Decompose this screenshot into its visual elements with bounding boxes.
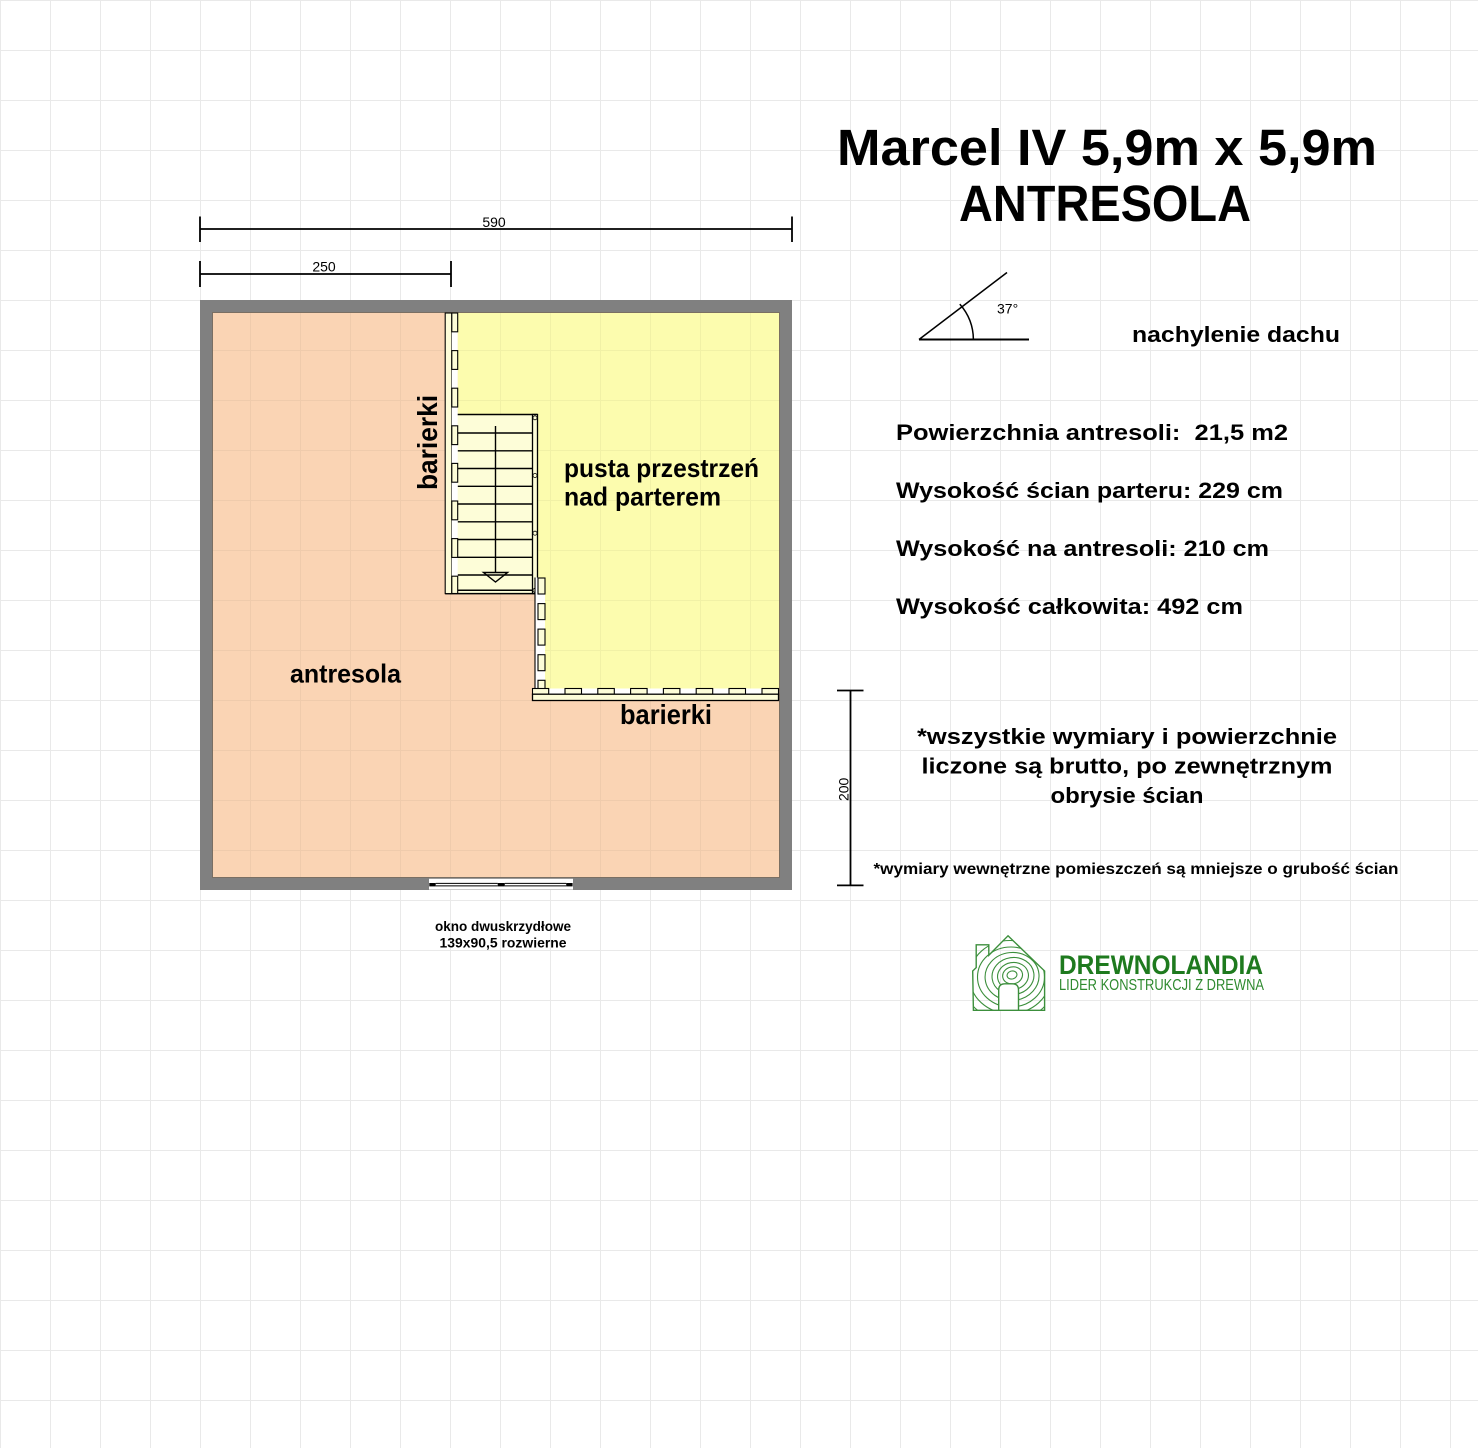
svg-text:antresola: antresola (290, 659, 402, 689)
svg-text:nad parterem: nad parterem (564, 482, 721, 512)
svg-text:Wysokość całkowita: 492 cm: Wysokość całkowita: 492 cm (896, 594, 1243, 619)
svg-text:liczone są brutto, po zewnętrz: liczone są brutto, po zewnętrznym (922, 754, 1333, 779)
svg-text:590: 590 (482, 214, 506, 230)
svg-text:Marcel IV 5,9m x 5,9m: Marcel IV 5,9m x 5,9m (837, 119, 1377, 176)
svg-text:pusta przestrzeń: pusta przestrzeń (564, 453, 759, 483)
svg-text:nachylenie dachu: nachylenie dachu (1132, 322, 1340, 347)
svg-text:okno dwuskrzydłowe: okno dwuskrzydłowe (435, 919, 571, 934)
svg-text:*wszystkie wymiary i powierzch: *wszystkie wymiary i powierzchnie (917, 724, 1337, 749)
svg-text:*wymiary wewnętrzne pomieszcze: *wymiary wewnętrzne pomieszczeń są mniej… (874, 861, 1399, 878)
svg-text:37°: 37° (997, 301, 1018, 317)
svg-text:200: 200 (836, 777, 852, 801)
svg-text:Powierzchnia antresoli: 21,5: Powierzchnia antresoli: 21,5 m2 (896, 420, 1288, 445)
svg-text:139x90,5 rozwierne: 139x90,5 rozwierne (440, 936, 568, 951)
svg-text:LIDER KONSTRUKCJI Z DREWNA: LIDER KONSTRUKCJI Z DREWNA (1059, 977, 1264, 994)
svg-text:barierki: barierki (620, 699, 712, 730)
svg-text:Wysokość na antresoli: 210 cm: Wysokość na antresoli: 210 cm (896, 536, 1269, 561)
svg-text:ANTRESOLA: ANTRESOLA (959, 175, 1251, 232)
svg-text:obrysie ścian: obrysie ścian (1051, 783, 1204, 808)
svg-text:250: 250 (312, 259, 336, 275)
svg-text:Wysokość ścian parteru: 229 cm: Wysokość ścian parteru: 229 cm (896, 478, 1283, 503)
svg-text:barierki: barierki (412, 395, 443, 490)
svg-text:DREWNOLANDIA: DREWNOLANDIA (1059, 950, 1263, 980)
